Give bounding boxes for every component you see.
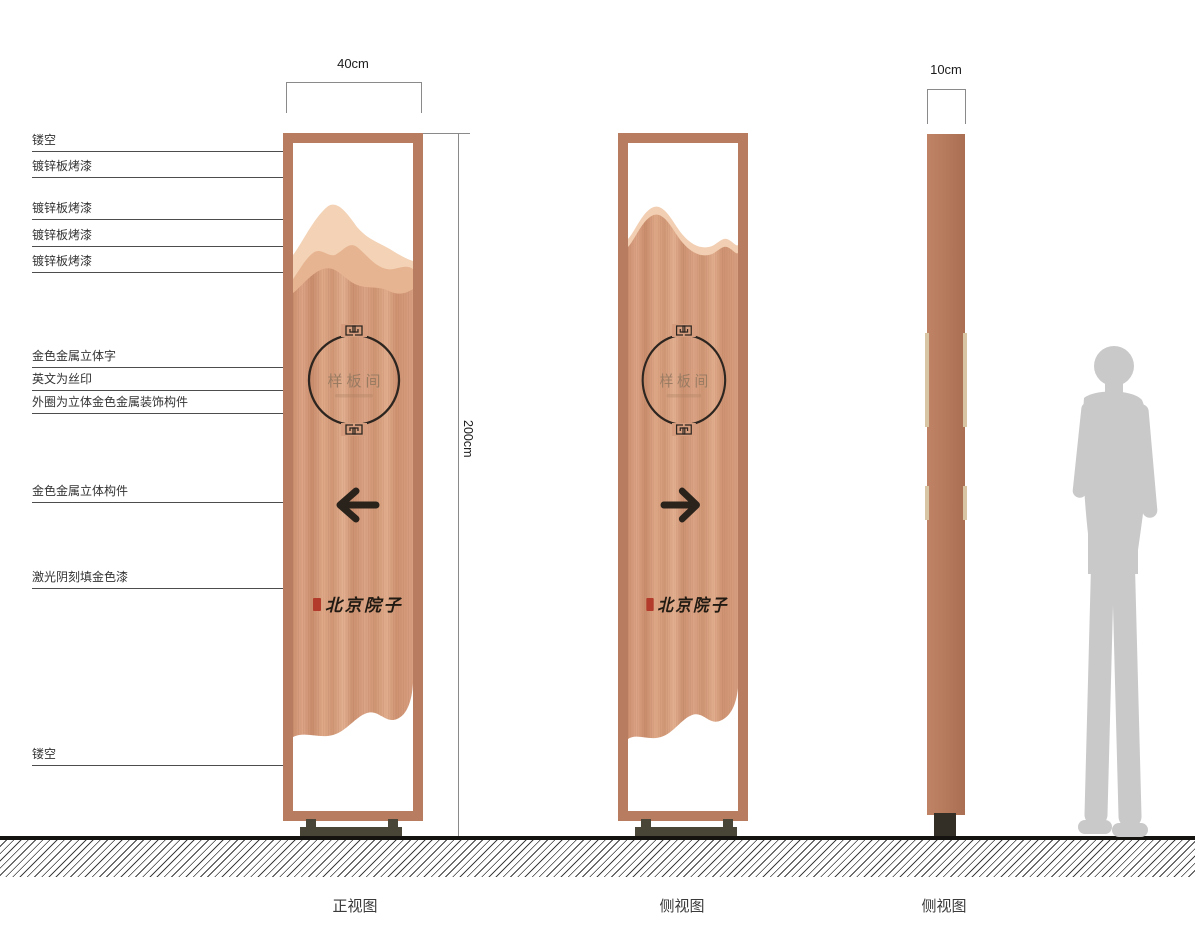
arrow-protrusion-left (925, 486, 929, 520)
dim-height-tick (423, 133, 470, 134)
callout-label: 金色金属立体字 (32, 349, 116, 363)
brand-calligraphy: 北京院子 (657, 595, 728, 615)
side-view1-artwork: 样板间 北京院子 (628, 143, 738, 811)
side-view2-slab (927, 134, 965, 815)
brand-calligraphy: 北京院子 (325, 596, 403, 616)
callout-outer-ring: 外圈为立体金色金属装饰构件 (32, 396, 318, 414)
callout-galvanized-4: 镀锌板烤漆 (32, 255, 293, 273)
front-view-artwork: 样板间 北京院子 (293, 143, 413, 811)
brushed-texture-overlay (628, 215, 738, 739)
callout-label: 英文为丝印 (32, 372, 92, 386)
callout-hollow-top: 镂空 (32, 134, 305, 152)
emblem-text: 样板间 (327, 372, 384, 390)
emblem-protrusion-right (963, 333, 967, 427)
callout-label: 金色金属立体构件 (32, 484, 128, 498)
dim-front-width-label: 40cm (286, 56, 420, 71)
emblem-text: 样板间 (660, 371, 712, 390)
side-view1-sign-panel: 样板间 北京院子 (628, 143, 738, 811)
dim-side-width-label: 10cm (920, 62, 972, 77)
caption-side-view-2: 侧视图 (894, 895, 994, 916)
caption-front-view: 正视图 (305, 895, 405, 916)
front-view-sign-frame: 样板间 北京院子 (283, 133, 423, 821)
english-silkscreen-text (335, 394, 373, 398)
red-seal (646, 598, 653, 611)
red-seal (313, 598, 321, 611)
side2-base-block (934, 813, 956, 838)
callout-label: 镀锌板烤漆 (32, 201, 92, 215)
callout-label: 镀锌板烤漆 (32, 159, 92, 173)
callout-label: 外圈为立体金色金属装饰构件 (32, 395, 188, 409)
callout-label: 激光阴刻填金色漆 (32, 570, 128, 584)
caption-side-view-1: 侧视图 (632, 895, 732, 916)
callout-galvanized-3: 镀锌板烤漆 (32, 229, 293, 247)
dim-height-label: 200cm (461, 420, 475, 458)
dim-height-line (458, 133, 459, 838)
elevation-drawing-canvas: 镂空 镀锌板烤漆 镀锌板烤漆 镀锌板烤漆 镀锌板烤漆 金色金属立体字 英文为丝印… (0, 0, 1195, 927)
dim-front-width-bracket (286, 82, 422, 113)
english-silkscreen-text (667, 394, 702, 398)
emblem-protrusion-left (925, 333, 929, 427)
front-view-sign-panel: 样板间 北京院子 (293, 143, 413, 811)
callout-laser-engraved: 激光阴刻填金色漆 (32, 571, 287, 589)
dim-side-width-bracket (927, 89, 966, 124)
callout-label: 镂空 (32, 133, 56, 147)
person-silhouette (1038, 342, 1168, 839)
callout-label: 镀锌板烤漆 (32, 228, 92, 242)
callout-label: 镂空 (32, 747, 56, 761)
arrow-protrusion-right (963, 486, 967, 520)
side-view1-sign-frame: 样板间 北京院子 (618, 133, 748, 821)
callout-hollow-bottom: 镂空 (32, 748, 303, 766)
callout-galvanized-2: 镀锌板烤漆 (32, 202, 323, 220)
callout-label: 镀锌板烤漆 (32, 254, 92, 268)
ground-hatch (0, 840, 1195, 877)
callout-galvanized-1: 镀锌板烤漆 (32, 160, 283, 178)
